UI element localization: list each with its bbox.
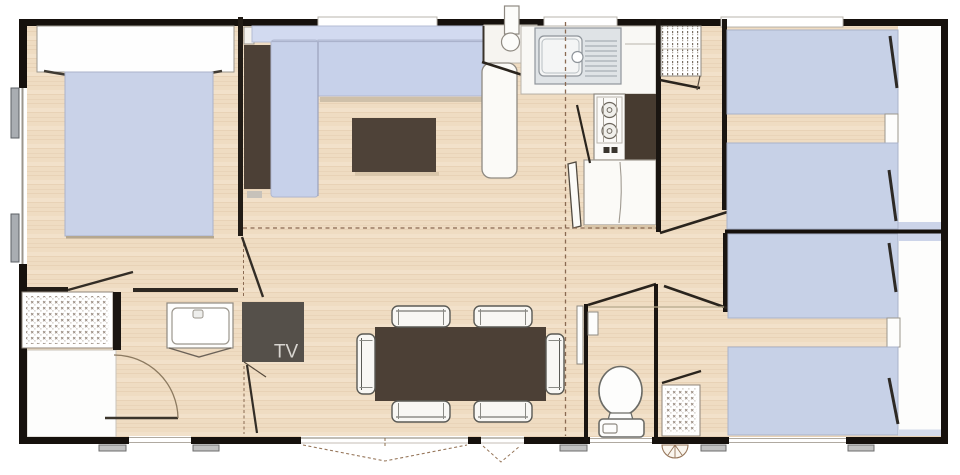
svg-text:TV: TV [274, 342, 299, 363]
